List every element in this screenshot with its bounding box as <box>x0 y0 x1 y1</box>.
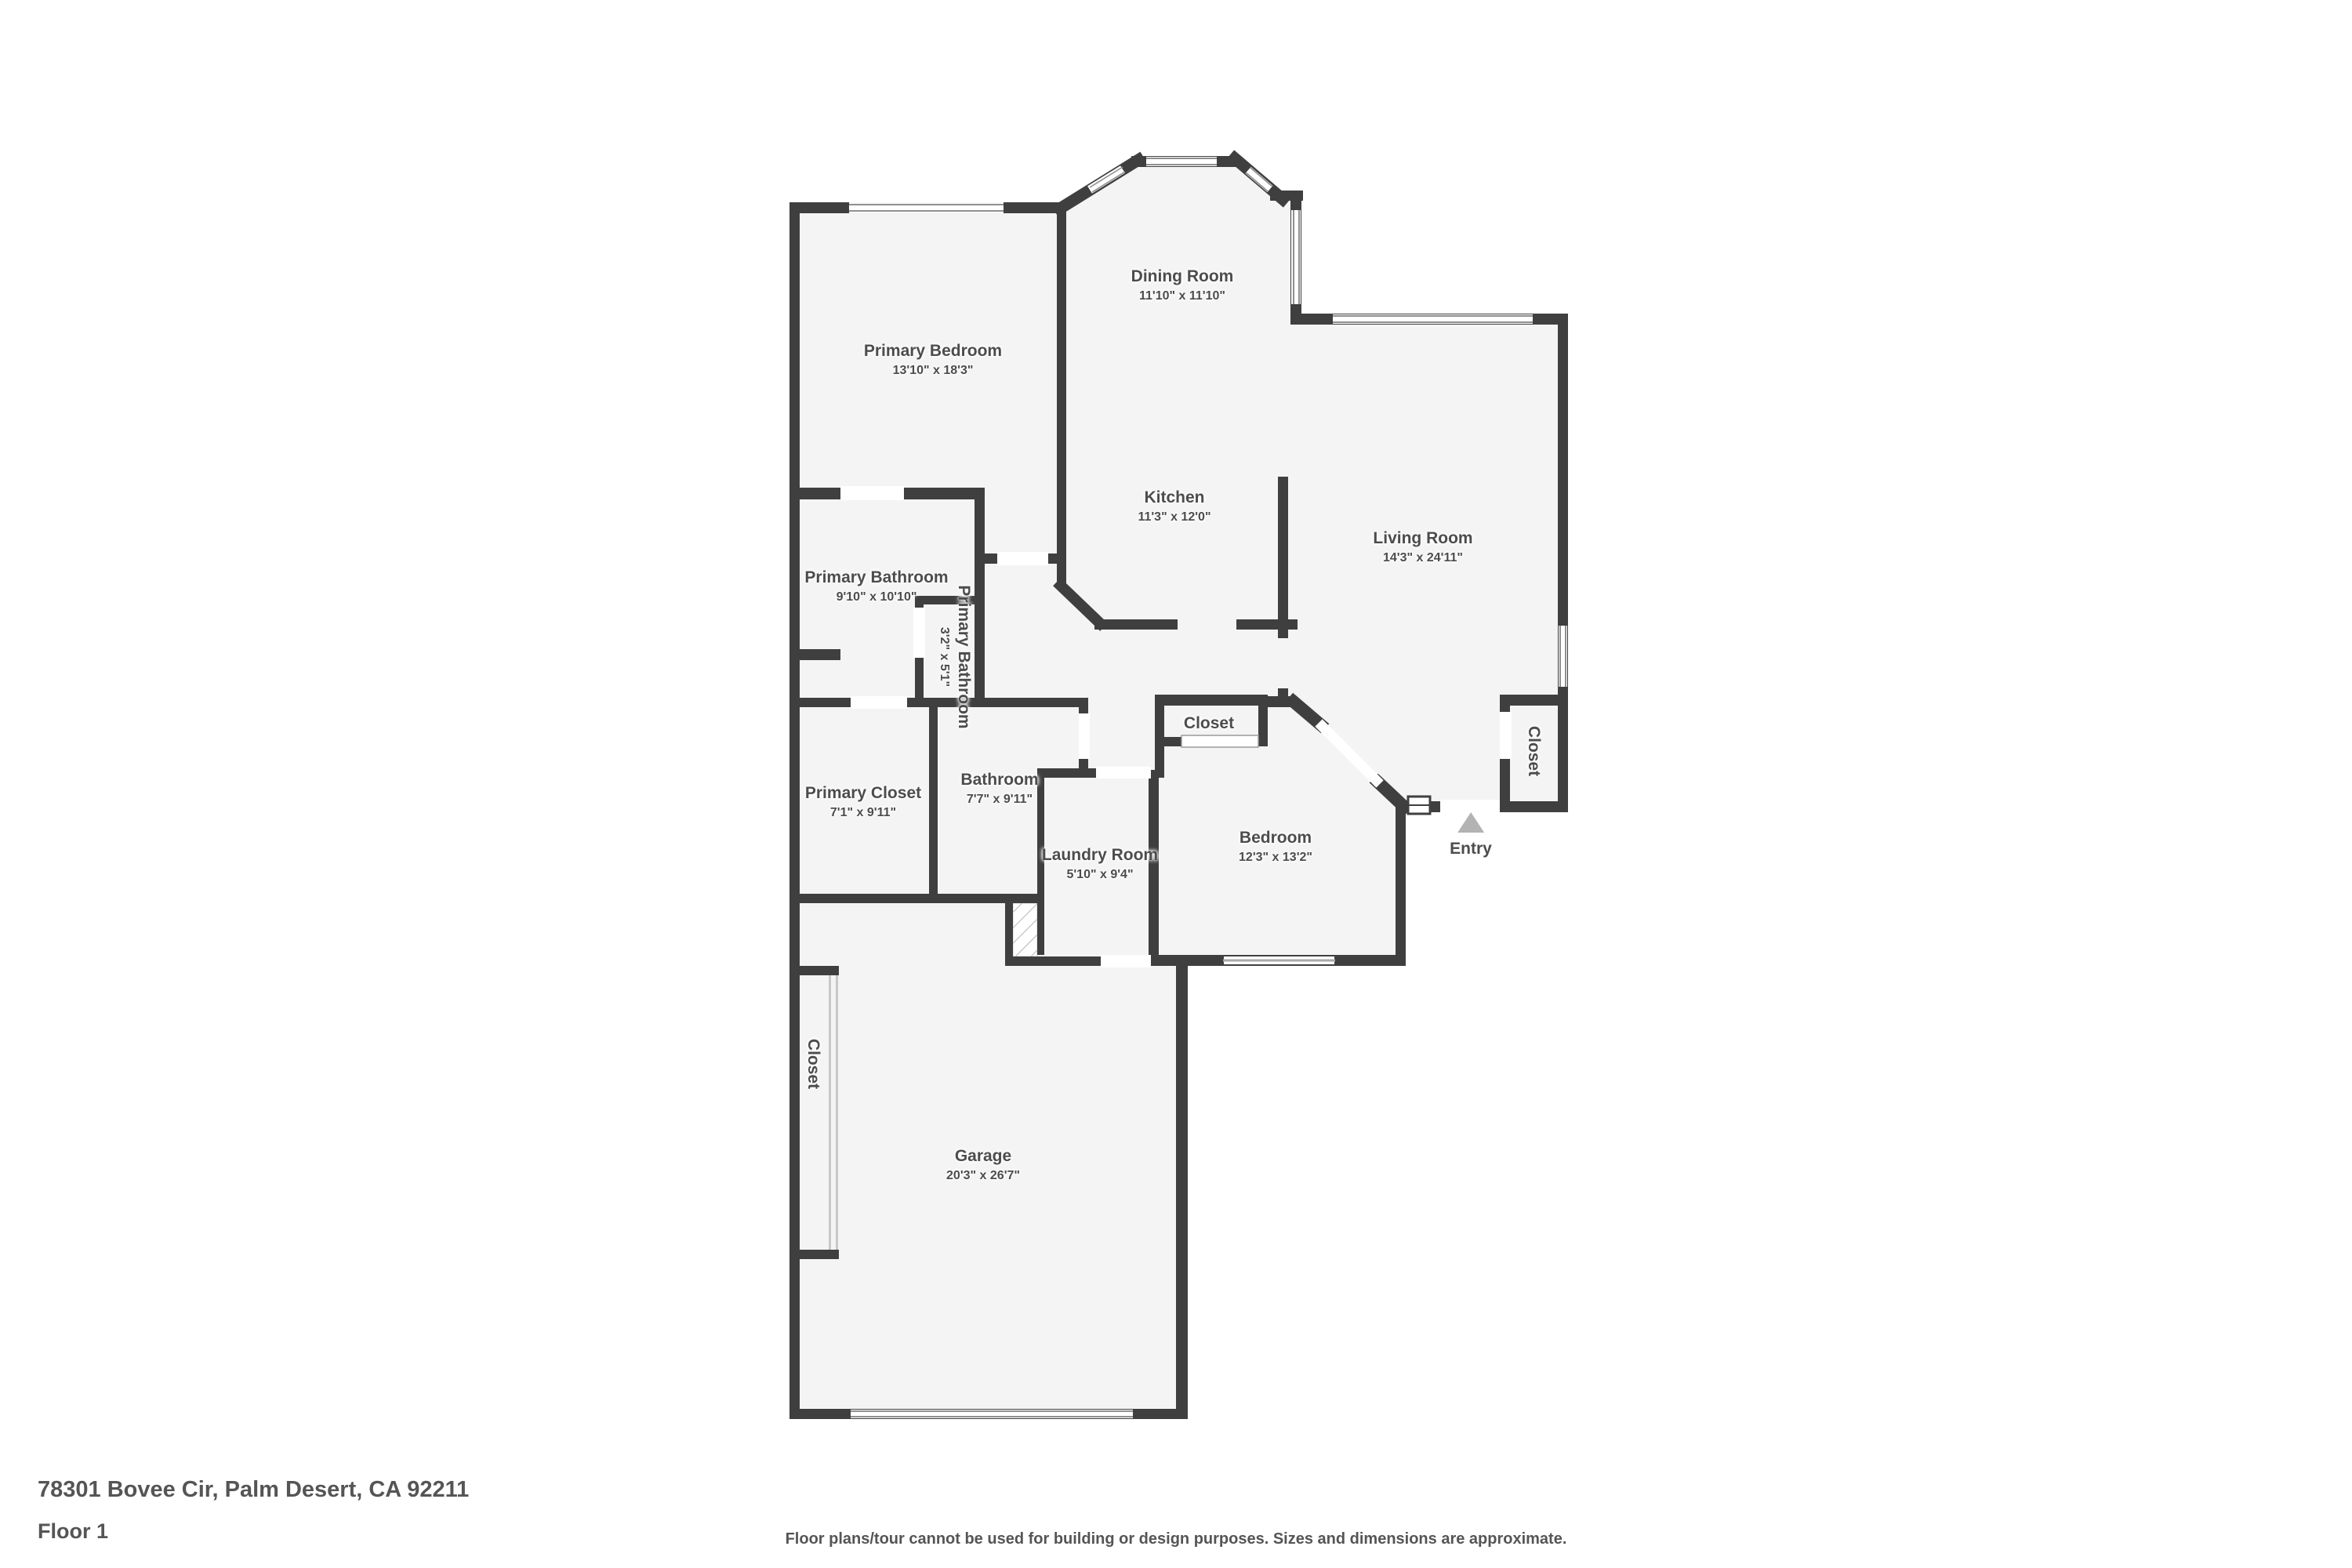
room-dims: 7'7" x 9'11" <box>960 792 1038 808</box>
room-name: Kitchen <box>1138 488 1210 508</box>
room-label-bedroom-closet: Closet <box>1184 713 1234 734</box>
window-bedroom-bottom <box>1223 956 1335 965</box>
entry-label: Entry <box>1450 840 1492 858</box>
room-label-laundry-room: Laundry Room 5'10" x 9'4" <box>1042 845 1158 883</box>
room-label-living-room: Living Room 14'3" x 24'11" <box>1373 528 1472 566</box>
room-dims: 9'10" x 10'10" <box>804 590 948 605</box>
garage-door <box>851 1410 1133 1418</box>
disclaimer-text: Floor plans/tour cannot be used for buil… <box>0 1530 2352 1548</box>
room-label-primary-bathroom: Primary Bathroom 9'10" x 10'10" <box>804 568 948 605</box>
window-dining-east <box>1291 210 1301 304</box>
room-name: Closet <box>1184 713 1234 734</box>
room-name: Living Room <box>1373 528 1472 549</box>
room-dims: 13'10" x 18'3" <box>864 363 1002 379</box>
entry-arrow-icon <box>1457 812 1484 833</box>
floor-plan-page: { "title_block": { "address": "78301 Bov… <box>0 0 2352 1568</box>
room-label-garage-closet: Closet <box>803 1039 823 1089</box>
entry-marker: Entry <box>1450 812 1492 858</box>
room-name: Primary Bathroom <box>804 568 948 588</box>
window-entry-sidelight <box>1408 797 1430 814</box>
window-living-east <box>1559 626 1567 687</box>
room-dims: 12'3" x 13'2" <box>1239 850 1312 866</box>
room-dims: 14'3" x 24'11" <box>1373 550 1472 566</box>
room-label-primary-bathroom-small: Primary Bathroom 3'2" x 5'1" <box>936 585 974 728</box>
hatched-area <box>1013 903 1037 956</box>
room-name: Laundry Room <box>1042 845 1158 866</box>
room-name: Closet <box>803 1039 823 1089</box>
window-living-top <box>1333 314 1533 324</box>
room-name: Primary Bedroom <box>864 341 1002 361</box>
room-label-bathroom: Bathroom 7'7" x 9'11" <box>960 770 1038 808</box>
room-name: Bathroom <box>960 770 1038 790</box>
room-dims: 7'1" x 9'11" <box>805 805 921 821</box>
room-label-kitchen: Kitchen 11'3" x 12'0" <box>1138 488 1210 525</box>
room-dims: 11'3" x 12'0" <box>1138 510 1210 525</box>
window-bay-top <box>1146 157 1217 166</box>
room-dims: 3'2" x 5'1" <box>936 585 952 728</box>
room-label-primary-bedroom: Primary Bedroom 13'10" x 18'3" <box>864 341 1002 379</box>
window-primary-bedroom <box>849 203 1004 212</box>
property-address: 78301 Bovee Cir, Palm Desert, CA 92211 <box>38 1477 469 1503</box>
room-dims: 5'10" x 9'4" <box>1042 867 1158 883</box>
room-name: Dining Room <box>1131 267 1234 287</box>
room-label-primary-closet: Primary Closet 7'1" x 9'11" <box>805 783 921 821</box>
room-label-bedroom: Bedroom 12'3" x 13'2" <box>1239 828 1312 866</box>
room-name: Primary Bathroom <box>953 585 974 728</box>
room-label-garage: Garage 20'3" x 26'7" <box>946 1146 1020 1184</box>
room-label-entry-closet: Closet <box>1523 726 1544 776</box>
room-dims: 11'10" x 11'10" <box>1131 289 1234 304</box>
room-name: Garage <box>946 1146 1020 1167</box>
room-name: Closet <box>1523 726 1544 776</box>
room-name: Bedroom <box>1239 828 1312 848</box>
floor-plan-drawing <box>0 0 2352 1568</box>
room-label-dining-room: Dining Room 11'10" x 11'10" <box>1131 267 1234 304</box>
room-dims: 20'3" x 26'7" <box>946 1168 1020 1184</box>
room-name: Primary Closet <box>805 783 921 804</box>
